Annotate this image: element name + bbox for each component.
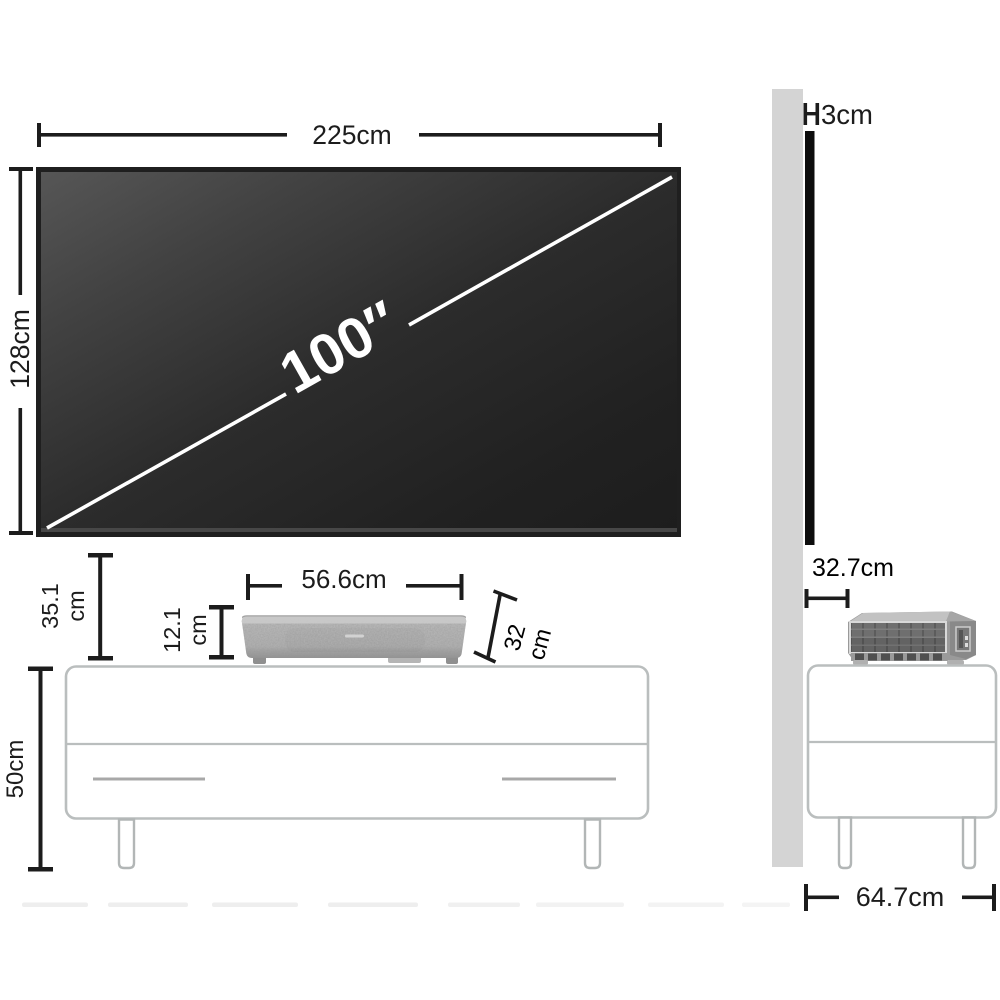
svg-text:225cm: 225cm: [312, 120, 392, 150]
svg-text:12.1: 12.1: [159, 607, 185, 653]
svg-text:3cm: 3cm: [821, 99, 873, 130]
svg-text:50cm: 50cm: [2, 740, 29, 799]
svg-text:cm: cm: [63, 590, 89, 621]
svg-text:64.7cm: 64.7cm: [856, 882, 945, 912]
svg-text:128cm: 128cm: [5, 309, 35, 389]
svg-text:35.1: 35.1: [37, 583, 63, 629]
svg-text:32.7cm: 32.7cm: [812, 554, 894, 582]
svg-text:cm: cm: [185, 614, 211, 645]
svg-text:56.6cm: 56.6cm: [301, 564, 386, 594]
